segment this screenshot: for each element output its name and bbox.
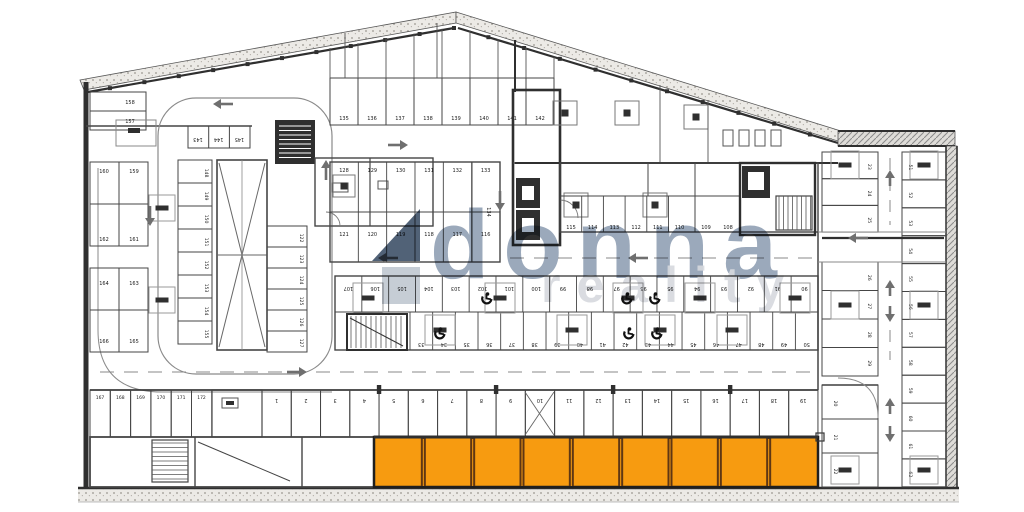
svg-text:103: 103 bbox=[451, 285, 461, 291]
svg-text:26: 26 bbox=[866, 275, 872, 281]
svg-text:163: 163 bbox=[129, 281, 139, 287]
svg-text:50: 50 bbox=[804, 341, 810, 347]
svg-text:53: 53 bbox=[907, 220, 913, 226]
svg-text:114: 114 bbox=[588, 225, 598, 231]
floor-plan-page: 1581571601591621611641631661651431441451… bbox=[0, 0, 1024, 512]
svg-text:34: 34 bbox=[441, 341, 447, 347]
svg-text:3: 3 bbox=[334, 397, 337, 403]
svg-text:2: 2 bbox=[304, 397, 307, 403]
svg-text:22: 22 bbox=[832, 469, 838, 475]
svg-text:126: 126 bbox=[298, 318, 304, 327]
svg-text:149: 149 bbox=[203, 192, 209, 201]
svg-text:165: 165 bbox=[129, 339, 139, 345]
svg-text:98: 98 bbox=[587, 285, 593, 291]
center-double-row: 1071061051041031021011009998979695949392… bbox=[335, 276, 818, 350]
svg-text:14: 14 bbox=[654, 397, 660, 403]
svg-text:9: 9 bbox=[509, 397, 512, 403]
svg-text:112: 112 bbox=[631, 225, 641, 231]
svg-text:154: 154 bbox=[203, 307, 209, 316]
svg-text:132: 132 bbox=[453, 168, 463, 174]
svg-text:12: 12 bbox=[595, 397, 601, 403]
bottom-cell-row: 1671681691701711721234567891011121314151… bbox=[90, 385, 818, 437]
svg-text:57: 57 bbox=[907, 332, 913, 338]
svg-text:37: 37 bbox=[509, 341, 515, 347]
svg-text:150: 150 bbox=[203, 215, 209, 224]
svg-text:105: 105 bbox=[397, 285, 407, 291]
svg-text:131: 131 bbox=[424, 168, 434, 174]
svg-text:46: 46 bbox=[713, 341, 719, 347]
svg-text:36: 36 bbox=[486, 341, 492, 347]
svg-text:48: 48 bbox=[758, 341, 764, 347]
svg-text:144: 144 bbox=[214, 136, 224, 142]
svg-text:45: 45 bbox=[690, 341, 696, 347]
svg-text:35: 35 bbox=[463, 341, 469, 347]
svg-text:41: 41 bbox=[599, 341, 605, 347]
svg-text:117: 117 bbox=[453, 232, 463, 238]
svg-text:108: 108 bbox=[723, 225, 733, 231]
svg-text:5: 5 bbox=[392, 397, 395, 403]
building-shell bbox=[78, 12, 959, 502]
svg-text:61: 61 bbox=[907, 444, 913, 450]
svg-text:138: 138 bbox=[423, 116, 433, 122]
svg-text:120: 120 bbox=[368, 232, 378, 238]
svg-text:16: 16 bbox=[712, 397, 718, 403]
svg-text:159: 159 bbox=[129, 169, 139, 175]
svg-text:95: 95 bbox=[667, 285, 673, 291]
svg-text:29: 29 bbox=[866, 360, 872, 366]
svg-text:124: 124 bbox=[298, 276, 304, 285]
svg-text:140: 140 bbox=[479, 116, 489, 122]
svg-text:129: 129 bbox=[368, 168, 378, 174]
svg-text:128: 128 bbox=[339, 168, 349, 174]
svg-text:99: 99 bbox=[560, 285, 566, 291]
svg-text:116: 116 bbox=[481, 232, 491, 238]
svg-text:55: 55 bbox=[907, 276, 913, 282]
svg-text:38: 38 bbox=[531, 341, 537, 347]
svg-text:164: 164 bbox=[99, 281, 109, 287]
svg-text:167: 167 bbox=[96, 395, 105, 401]
svg-text:145: 145 bbox=[235, 136, 245, 142]
svg-text:60: 60 bbox=[907, 416, 913, 422]
svg-text:15: 15 bbox=[683, 397, 689, 403]
svg-text:153: 153 bbox=[203, 284, 209, 293]
svg-text:33: 33 bbox=[418, 341, 424, 347]
svg-text:52: 52 bbox=[907, 192, 913, 198]
svg-text:17: 17 bbox=[742, 397, 748, 403]
svg-text:162: 162 bbox=[99, 237, 109, 243]
svg-text:28: 28 bbox=[866, 332, 872, 338]
svg-text:170: 170 bbox=[157, 395, 166, 401]
svg-text:155: 155 bbox=[203, 330, 209, 339]
svg-text:168: 168 bbox=[116, 395, 125, 401]
svg-text:8: 8 bbox=[480, 397, 483, 403]
svg-text:133: 133 bbox=[481, 168, 491, 174]
svg-text:7: 7 bbox=[451, 397, 454, 403]
svg-text:93: 93 bbox=[721, 285, 727, 291]
svg-text:58: 58 bbox=[907, 360, 913, 366]
svg-text:109: 109 bbox=[701, 225, 711, 231]
svg-text:142: 142 bbox=[535, 116, 545, 122]
floor-plan-canvas: 1581571601591621611641631661651431441451… bbox=[0, 0, 1024, 512]
top-right-zone: 115114113112111110109108 bbox=[515, 85, 838, 235]
svg-text:19: 19 bbox=[800, 397, 806, 403]
svg-text:11: 11 bbox=[566, 397, 572, 403]
svg-text:110: 110 bbox=[675, 225, 685, 231]
svg-text:130: 130 bbox=[396, 168, 406, 174]
svg-text:96: 96 bbox=[640, 285, 646, 291]
svg-text:97: 97 bbox=[614, 285, 620, 291]
highlighted-stalls bbox=[374, 433, 824, 487]
svg-text:119: 119 bbox=[396, 232, 406, 238]
svg-text:20: 20 bbox=[832, 401, 838, 407]
right-parking-section: 5152535455565758596061622324252627282920… bbox=[818, 151, 946, 487]
svg-text:18: 18 bbox=[771, 397, 777, 403]
svg-text:111: 111 bbox=[653, 225, 663, 231]
svg-text:90: 90 bbox=[801, 285, 807, 291]
svg-text:121: 121 bbox=[339, 232, 349, 238]
svg-text:160: 160 bbox=[99, 169, 109, 175]
svg-text:47: 47 bbox=[735, 341, 741, 347]
main-drive-lane bbox=[100, 367, 810, 377]
svg-text:135: 135 bbox=[339, 116, 349, 122]
svg-text:23: 23 bbox=[866, 164, 872, 170]
svg-text:166: 166 bbox=[99, 339, 109, 345]
svg-text:137: 137 bbox=[395, 116, 405, 122]
svg-text:134: 134 bbox=[485, 207, 491, 217]
svg-text:6: 6 bbox=[421, 397, 424, 403]
svg-text:172: 172 bbox=[197, 395, 206, 401]
svg-text:102: 102 bbox=[478, 285, 488, 291]
svg-text:92: 92 bbox=[748, 285, 754, 291]
svg-text:171: 171 bbox=[177, 395, 186, 401]
svg-text:152: 152 bbox=[203, 261, 209, 270]
svg-text:139: 139 bbox=[451, 116, 461, 122]
svg-text:13: 13 bbox=[625, 397, 631, 403]
svg-text:24: 24 bbox=[866, 191, 872, 197]
svg-text:101: 101 bbox=[505, 285, 515, 291]
svg-text:118: 118 bbox=[424, 232, 434, 238]
svg-text:136: 136 bbox=[367, 116, 377, 122]
svg-text:59: 59 bbox=[907, 388, 913, 394]
svg-text:42: 42 bbox=[622, 341, 628, 347]
svg-text:21: 21 bbox=[832, 435, 838, 441]
svg-text:1: 1 bbox=[275, 397, 278, 403]
svg-text:100: 100 bbox=[531, 285, 541, 291]
svg-text:148: 148 bbox=[203, 169, 209, 178]
svg-text:25: 25 bbox=[866, 217, 872, 223]
svg-text:40: 40 bbox=[577, 341, 583, 347]
svg-text:169: 169 bbox=[136, 395, 145, 401]
svg-text:27: 27 bbox=[866, 303, 872, 309]
svg-text:44: 44 bbox=[667, 341, 673, 347]
svg-text:158: 158 bbox=[125, 100, 135, 106]
svg-text:115: 115 bbox=[566, 225, 576, 231]
svg-text:104: 104 bbox=[424, 285, 434, 291]
svg-text:43: 43 bbox=[645, 341, 651, 347]
svg-text:107: 107 bbox=[344, 285, 354, 291]
svg-text:94: 94 bbox=[694, 285, 700, 291]
svg-text:113: 113 bbox=[610, 225, 620, 231]
svg-text:127: 127 bbox=[298, 339, 304, 348]
svg-text:10: 10 bbox=[537, 397, 543, 403]
svg-text:54: 54 bbox=[907, 248, 913, 254]
svg-text:49: 49 bbox=[781, 341, 787, 347]
bottom-left-rooms bbox=[90, 437, 374, 487]
svg-text:143: 143 bbox=[193, 136, 203, 142]
svg-text:4: 4 bbox=[363, 397, 366, 403]
svg-text:125: 125 bbox=[298, 297, 304, 306]
svg-text:123: 123 bbox=[298, 255, 304, 264]
svg-text:161: 161 bbox=[129, 237, 139, 243]
svg-text:122: 122 bbox=[298, 234, 304, 243]
svg-text:151: 151 bbox=[203, 238, 209, 247]
central-core bbox=[513, 40, 578, 245]
svg-text:106: 106 bbox=[370, 285, 380, 291]
